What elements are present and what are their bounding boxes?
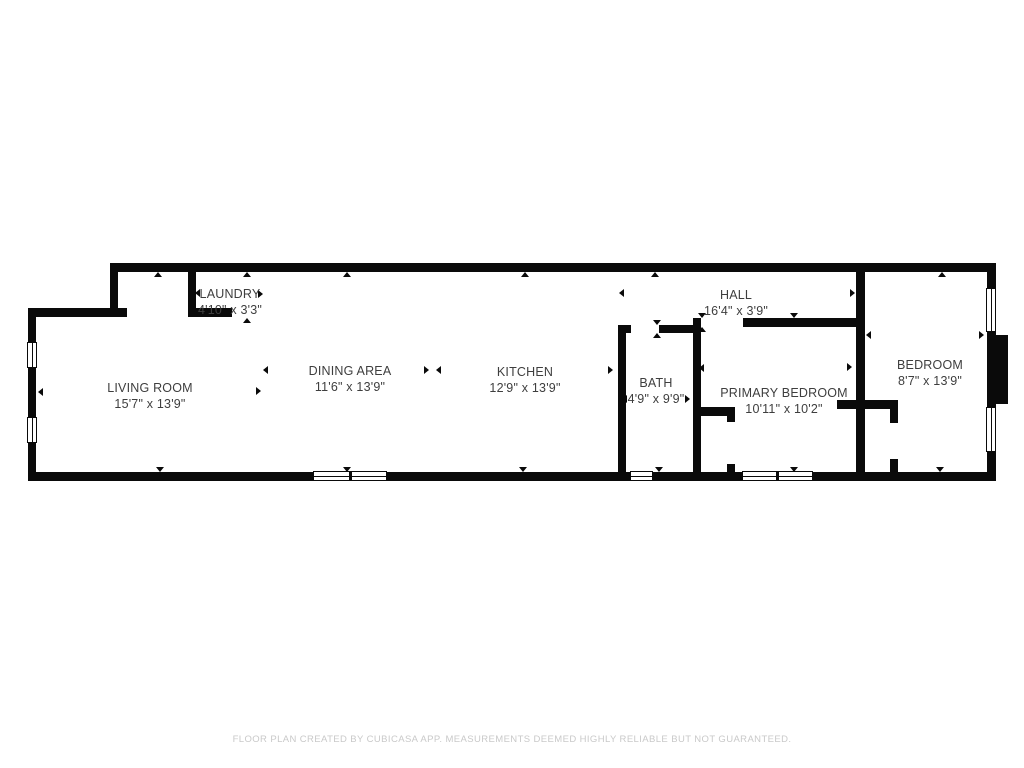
- wall-primary-bedroom-right: [856, 263, 865, 481]
- window-left-2: [27, 417, 37, 443]
- window-mullion: [32, 343, 33, 367]
- footer-disclaimer: FLOOR PLAN CREATED BY CUBICASA APP. MEAS…: [0, 734, 1024, 745]
- wall-bath-primary: [693, 318, 701, 481]
- measure-tick-icon: [651, 272, 659, 277]
- window-pane: [631, 472, 652, 480]
- measure-tick-icon: [655, 467, 663, 472]
- room-dimensions: 11'6" x 13'9": [309, 379, 392, 395]
- measure-tick-icon: [850, 289, 855, 297]
- window-mullion: [314, 476, 349, 477]
- floor-plan: FLOOR PLAN CREATED BY CUBICASA APP. MEAS…: [0, 0, 1024, 768]
- room-dimensions: 4'10" x 3'3": [198, 302, 262, 318]
- measure-tick-icon: [263, 366, 268, 374]
- measure-tick-icon: [790, 313, 798, 318]
- room-name: PRIMARY BEDROOM: [720, 386, 848, 400]
- room-name: HALL: [720, 288, 752, 302]
- room-name: BATH: [639, 376, 672, 390]
- window-pane: [28, 343, 36, 367]
- window-mullion: [631, 476, 652, 477]
- measure-tick-icon: [936, 467, 944, 472]
- room-dimensions: 12'9" x 13'9": [489, 380, 560, 396]
- room-dimensions: 8'7" x 13'9": [897, 373, 963, 389]
- wall-kitchen-bath: [618, 325, 626, 481]
- measure-tick-icon: [653, 333, 661, 338]
- room-name: DINING AREA: [309, 364, 392, 378]
- wall-bedroom-closet-stub-top: [890, 407, 898, 423]
- window-pane: [743, 472, 776, 480]
- window-mullion: [32, 418, 33, 442]
- wall-bottom: [28, 472, 995, 481]
- window-pane: [779, 472, 812, 480]
- room-label-primary-bedroom: PRIMARY BEDROOM10'11" x 10'2": [720, 385, 848, 417]
- measure-tick-icon: [938, 272, 946, 277]
- measure-tick-icon: [343, 467, 351, 472]
- room-dimensions: 15'7" x 13'9": [107, 396, 193, 412]
- room-dimensions: 16'4" x 3'9": [704, 303, 768, 319]
- room-dimensions: 4'9" x 9'9": [628, 391, 685, 407]
- wall-upper-left: [110, 263, 118, 317]
- room-dimensions: 10'11" x 10'2": [720, 401, 848, 417]
- window-pane: [28, 418, 36, 442]
- measure-tick-icon: [622, 395, 627, 403]
- window-bottom-living: [313, 471, 387, 481]
- measure-tick-icon: [436, 366, 441, 374]
- room-label-bedroom: BEDROOM8'7" x 13'9": [897, 357, 963, 389]
- room-label-living-room: LIVING ROOM15'7" x 13'9": [107, 380, 193, 412]
- measure-tick-icon: [790, 467, 798, 472]
- measure-tick-icon: [653, 320, 661, 325]
- measure-tick-icon: [343, 272, 351, 277]
- measure-tick-icon: [698, 327, 706, 332]
- measure-tick-icon: [856, 272, 864, 277]
- window-pane: [987, 408, 995, 451]
- window-bottom-primary: [742, 471, 813, 481]
- measure-tick-icon: [521, 272, 529, 277]
- window-left-1: [27, 342, 37, 368]
- room-name: LIVING ROOM: [107, 381, 193, 395]
- window-right-2: [986, 407, 996, 452]
- window-mullion: [991, 289, 992, 331]
- measure-tick-icon: [424, 366, 429, 374]
- window-pane: [987, 289, 995, 331]
- window-pane: [352, 472, 387, 480]
- measure-tick-icon: [699, 364, 704, 372]
- room-label-kitchen: KITCHEN12'9" x 13'9": [489, 364, 560, 396]
- room-name: BEDROOM: [897, 358, 963, 372]
- measure-tick-icon: [243, 272, 251, 277]
- measure-tick-icon: [38, 388, 43, 396]
- window-mullion: [743, 476, 776, 477]
- window-pane: [314, 472, 349, 480]
- measure-tick-icon: [256, 387, 261, 395]
- measure-tick-icon: [608, 366, 613, 374]
- measure-tick-icon: [154, 272, 162, 277]
- wall-primary-closet-stub-bottom: [727, 464, 735, 473]
- window-mullion: [779, 476, 812, 477]
- measure-tick-icon: [685, 395, 690, 403]
- measure-tick-icon: [847, 363, 852, 371]
- measure-tick-icon: [156, 467, 164, 472]
- room-label-dining-area: DINING AREA11'6" x 13'9": [309, 363, 392, 395]
- wall-bath-top-left: [618, 325, 631, 333]
- window-right-1: [986, 288, 996, 332]
- room-label-laundry: LAUNDRY4'10" x 3'3": [198, 286, 262, 318]
- wall-right-pier: [995, 335, 1008, 404]
- wall-bedroom-closet-stub-bottom: [890, 459, 898, 473]
- window-bottom-bath: [630, 471, 653, 481]
- wall-left: [28, 308, 36, 481]
- room-label-bath: BATH4'9" x 9'9": [628, 375, 685, 407]
- room-name: KITCHEN: [497, 365, 553, 379]
- window-mullion: [991, 408, 992, 451]
- measure-tick-icon: [979, 331, 984, 339]
- measure-tick-icon: [619, 289, 624, 297]
- room-name: LAUNDRY: [200, 287, 261, 301]
- measure-tick-icon: [243, 318, 251, 323]
- measure-tick-icon: [519, 467, 527, 472]
- window-mullion: [352, 476, 387, 477]
- wall-hall-bottom: [743, 318, 864, 327]
- measure-tick-icon: [866, 331, 871, 339]
- room-label-hall: HALL16'4" x 3'9": [704, 287, 768, 319]
